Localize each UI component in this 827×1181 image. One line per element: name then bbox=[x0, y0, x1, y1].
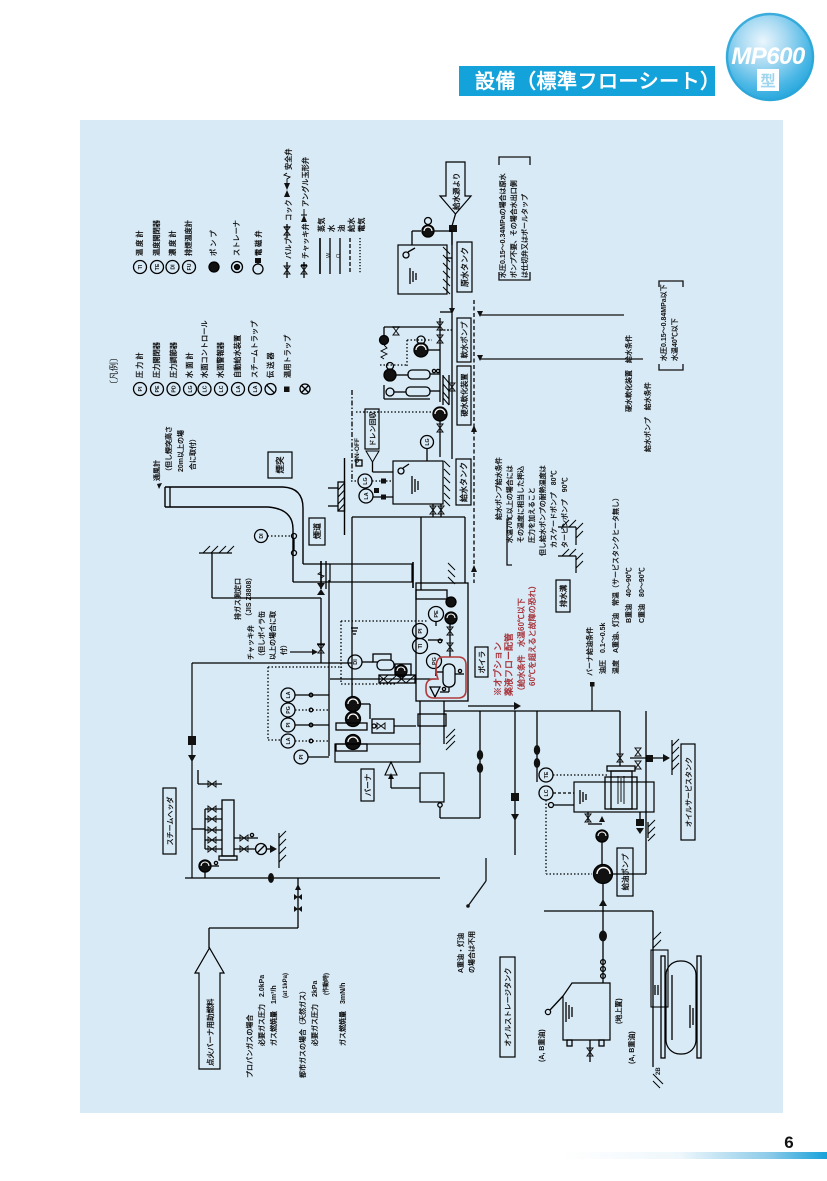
svg-text:ポンプ不要、その場合水出口側: ポンプ不要、その場合水出口側 bbox=[509, 180, 518, 278]
svg-text:圧力開閉器: 圧力開閉器 bbox=[152, 341, 161, 378]
svg-text:水面コントロール: 水面コントロール bbox=[200, 320, 209, 379]
svg-text:煙道: 煙道 bbox=[312, 523, 322, 539]
svg-text:給油ポンプ: 給油ポンプ bbox=[621, 853, 630, 890]
svg-text:バーナ給油条件: バーナ給油条件 bbox=[585, 627, 594, 676]
svg-text:設備（標準フローシート）: 設備（標準フローシート） bbox=[475, 69, 721, 93]
svg-text:都市ガスの場合（天然ガス）: 都市ガスの場合（天然ガス） bbox=[298, 987, 307, 1079]
svg-text:PE: PE bbox=[155, 385, 161, 392]
svg-text:点火バーナ用助燃料: 点火バーナ用助燃料 bbox=[205, 998, 215, 1066]
svg-text:硬水軟化装置 給水条件: 硬水軟化装置 給水条件 bbox=[624, 335, 633, 412]
svg-text:圧力調節器: 圧力調節器 bbox=[169, 341, 178, 378]
svg-text:原水タンク: 原水タンク bbox=[460, 247, 470, 287]
svg-text:給水タンク: 給水タンク bbox=[459, 462, 469, 502]
svg-text:TI: TI bbox=[418, 643, 424, 648]
svg-text:バーナ: バーナ bbox=[364, 773, 373, 796]
svg-text:水温40℃以下: 水温40℃以下 bbox=[670, 318, 679, 361]
svg-text:TE: TE bbox=[544, 771, 550, 778]
svg-text:TE: TE bbox=[155, 263, 161, 270]
svg-text:6: 6 bbox=[784, 1133, 793, 1152]
svg-text:（但しボイラ缶: （但しボイラ缶 bbox=[257, 611, 266, 660]
svg-text:ストレーナ: ストレーナ bbox=[232, 220, 241, 256]
svg-text:煙突: 煙突 bbox=[275, 456, 285, 474]
svg-text:電気: 電気 bbox=[357, 217, 366, 232]
svg-text:合に取付）: 合に取付） bbox=[188, 435, 197, 471]
svg-text:LC: LC bbox=[544, 789, 550, 796]
svg-text:電 磁 弁: 電 磁 弁 bbox=[254, 230, 263, 256]
svg-text:LG: LG bbox=[188, 385, 194, 392]
svg-text:DI: DI bbox=[171, 264, 177, 270]
svg-text:アングル玉形弁: アングル玉形弁 bbox=[301, 157, 310, 207]
svg-text:A重油・灯油: A重油・灯油 bbox=[456, 933, 465, 973]
svg-text:ポ ン プ: ポ ン プ bbox=[209, 230, 218, 256]
svg-text:（給水条件 水温60℃以下: （給水条件 水温60℃以下 bbox=[516, 598, 526, 695]
svg-text:圧力を加えること: 圧力を加えること bbox=[527, 487, 536, 543]
svg-text:軟水ポンプ: 軟水ポンプ bbox=[460, 321, 469, 358]
svg-text:DI: DI bbox=[259, 533, 265, 539]
svg-text:チャッキ弁: チャッキ弁 bbox=[246, 625, 255, 660]
svg-text:水圧0.15〜0.34MPaの場合は原水: 水圧0.15〜0.34MPaの場合は原水 bbox=[498, 172, 507, 278]
svg-text:水 面 計: 水 面 計 bbox=[185, 352, 194, 379]
svg-text:付）: 付） bbox=[279, 641, 288, 655]
svg-text:その温度に相当した押込: その温度に相当した押込 bbox=[516, 466, 525, 543]
svg-text:蒸気: 蒸気 bbox=[317, 217, 326, 232]
svg-text:ガス燃焼量 1m³/h: ガス燃焼量 1m³/h bbox=[269, 985, 278, 1046]
svg-text:但し給水ポンプの耐熱温度は: 但し給水ポンプの耐熱温度は bbox=[538, 465, 547, 557]
svg-text:バルブ: バルブ bbox=[284, 237, 293, 259]
svg-text:自動給水装置: 自動給水装置 bbox=[233, 335, 242, 378]
svg-text:(地上置): (地上置) bbox=[614, 998, 623, 1024]
svg-text:型: 型 bbox=[760, 72, 775, 90]
svg-text:2B: 2B bbox=[656, 1067, 662, 1075]
svg-text:温度 A重油、灯油 常温（サービスタンクヒータ無し）: 温度 A重油、灯油 常温（サービスタンクヒータ無し） bbox=[611, 494, 620, 674]
svg-text:通風計: 通風計 bbox=[152, 460, 161, 481]
svg-text:PI: PI bbox=[418, 628, 424, 634]
svg-text:濃 度 計: 濃 度 計 bbox=[168, 230, 177, 256]
svg-text:排ガス測定口: 排ガス測定口 bbox=[233, 578, 242, 620]
svg-text:O: O bbox=[336, 253, 342, 258]
svg-text:LG: LG bbox=[425, 438, 431, 445]
svg-text:LG: LG bbox=[363, 477, 369, 485]
svg-text:W: W bbox=[326, 252, 332, 258]
svg-text:（JIS Z8808）: （JIS Z8808） bbox=[245, 574, 253, 620]
svg-text:ボイラ: ボイラ bbox=[477, 651, 487, 674]
svg-text:20m以上の場: 20m以上の場 bbox=[176, 430, 185, 472]
svg-text:LA: LA bbox=[286, 691, 292, 698]
svg-text:タービンポンプ 90℃: タービンポンプ 90℃ bbox=[560, 477, 569, 548]
svg-text:※オプション: ※オプション bbox=[492, 642, 503, 696]
svg-text:スチームトラップ: スチームトラップ bbox=[250, 320, 259, 378]
svg-text:PE: PE bbox=[434, 610, 440, 618]
svg-text:安全弁: 安全弁 bbox=[284, 148, 293, 170]
svg-text:排煙温度計: 排煙温度計 bbox=[184, 219, 193, 256]
svg-text:以上の場合に取: 以上の場合に取 bbox=[268, 610, 277, 660]
svg-text:は仕切弁又はボールタップ: は仕切弁又はボールタップ bbox=[520, 193, 529, 278]
svg-text:水: 水 bbox=[327, 224, 336, 233]
svg-text:MP600: MP600 bbox=[731, 43, 806, 70]
svg-text:TI: TI bbox=[138, 264, 144, 269]
svg-text:温度開閉器: 温度開閉器 bbox=[152, 219, 161, 257]
svg-text:LA: LA bbox=[286, 737, 292, 744]
svg-text:(at 1kPa): (at 1kPa) bbox=[283, 973, 289, 998]
svg-text:必要ガス圧力 2kPa: 必要ガス圧力 2kPa bbox=[310, 981, 319, 1047]
svg-text:LC: LC bbox=[219, 385, 225, 392]
svg-text:PD: PD bbox=[172, 385, 178, 392]
svg-text:コック: コック bbox=[284, 199, 293, 221]
svg-text:チャッキ弁: チャッキ弁 bbox=[301, 223, 310, 259]
svg-text:給水: 給水 bbox=[347, 217, 356, 232]
svg-text:油: 油 bbox=[337, 225, 346, 232]
svg-text:LA: LA bbox=[236, 385, 242, 392]
svg-text:水圧0.15〜0.84MPa以下: 水圧0.15〜0.84MPa以下 bbox=[659, 284, 668, 361]
svg-text:プロパンガスの場合: プロパンガスの場合 bbox=[245, 1014, 254, 1078]
svg-text:〔凡例〕: 〔凡例〕 bbox=[108, 353, 119, 389]
svg-text:油圧 0.1〜0.5k: 油圧 0.1〜0.5k bbox=[598, 623, 607, 674]
svg-text:水面警報器: 水面警報器 bbox=[216, 341, 225, 379]
svg-text:（但し煙突高さ: （但し煙突高さ bbox=[164, 426, 173, 475]
svg-text:B重油 40〜90℃: B重油 40〜90℃ bbox=[624, 567, 633, 623]
svg-text:PI: PI bbox=[138, 386, 144, 391]
svg-text:の場合は不用: の場合は不用 bbox=[467, 931, 476, 973]
svg-text:温用トラップ: 温用トラップ bbox=[283, 334, 292, 379]
svg-text:伝 送 器: 伝 送 器 bbox=[266, 352, 275, 378]
svg-text:圧 力 計: 圧 力 計 bbox=[135, 352, 144, 378]
svg-text:(A, B重油): (A, B重油) bbox=[627, 1031, 636, 1064]
svg-text:排水溝: 排水溝 bbox=[558, 584, 568, 607]
svg-text:C重油 80〜90℃: C重油 80〜90℃ bbox=[637, 567, 646, 623]
svg-text:ドレン回収: ドレン回収 bbox=[368, 411, 377, 447]
svg-text:60℃を超えると故障の恐れ）: 60℃を超えると故障の恐れ） bbox=[527, 581, 537, 686]
svg-text:必要ガス圧力 2.0kPa: 必要ガス圧力 2.0kPa bbox=[257, 975, 266, 1047]
svg-text:FU: FU bbox=[187, 263, 193, 270]
svg-text:LC: LC bbox=[203, 385, 209, 392]
svg-text:給水ポンプ 給水条件: 給水ポンプ 給水条件 bbox=[643, 382, 652, 452]
svg-text:LA: LA bbox=[364, 492, 370, 499]
svg-text:DI: DI bbox=[353, 659, 359, 665]
svg-text:オイルサービスタンク: オイルサービスタンク bbox=[684, 757, 693, 827]
svg-text:給水ポンプ給水条件: 給水ポンプ給水条件 bbox=[494, 457, 503, 520]
svg-text:給水源より: 給水源より bbox=[451, 173, 461, 210]
svg-text:スチームヘッダ: スチームヘッダ bbox=[166, 797, 175, 846]
svg-text:PG: PG bbox=[286, 706, 292, 714]
svg-text:LA: LA bbox=[253, 385, 259, 392]
svg-text:硬水軟化装置: 硬水軟化装置 bbox=[460, 373, 469, 416]
svg-text:温 度 計: 温 度 計 bbox=[135, 230, 144, 257]
svg-text:(A, B重油): (A, B重油) bbox=[537, 1029, 546, 1062]
svg-text:(作動時): (作動時) bbox=[322, 973, 330, 995]
svg-text:薬液フロー配管: 薬液フロー配管 bbox=[503, 633, 514, 696]
svg-text:PI: PI bbox=[286, 722, 292, 727]
svg-text:PI: PI bbox=[299, 754, 305, 759]
svg-text:ON-OFF: ON-OFF bbox=[354, 438, 361, 463]
svg-text:オイルストレージタンク: オイルストレージタンク bbox=[504, 968, 513, 1047]
svg-text:ガス燃焼量 3mN/h: ガス燃焼量 3mN/h bbox=[338, 983, 347, 1046]
svg-text:カスケードポンプ 80℃: カスケードポンプ 80℃ bbox=[549, 470, 558, 548]
